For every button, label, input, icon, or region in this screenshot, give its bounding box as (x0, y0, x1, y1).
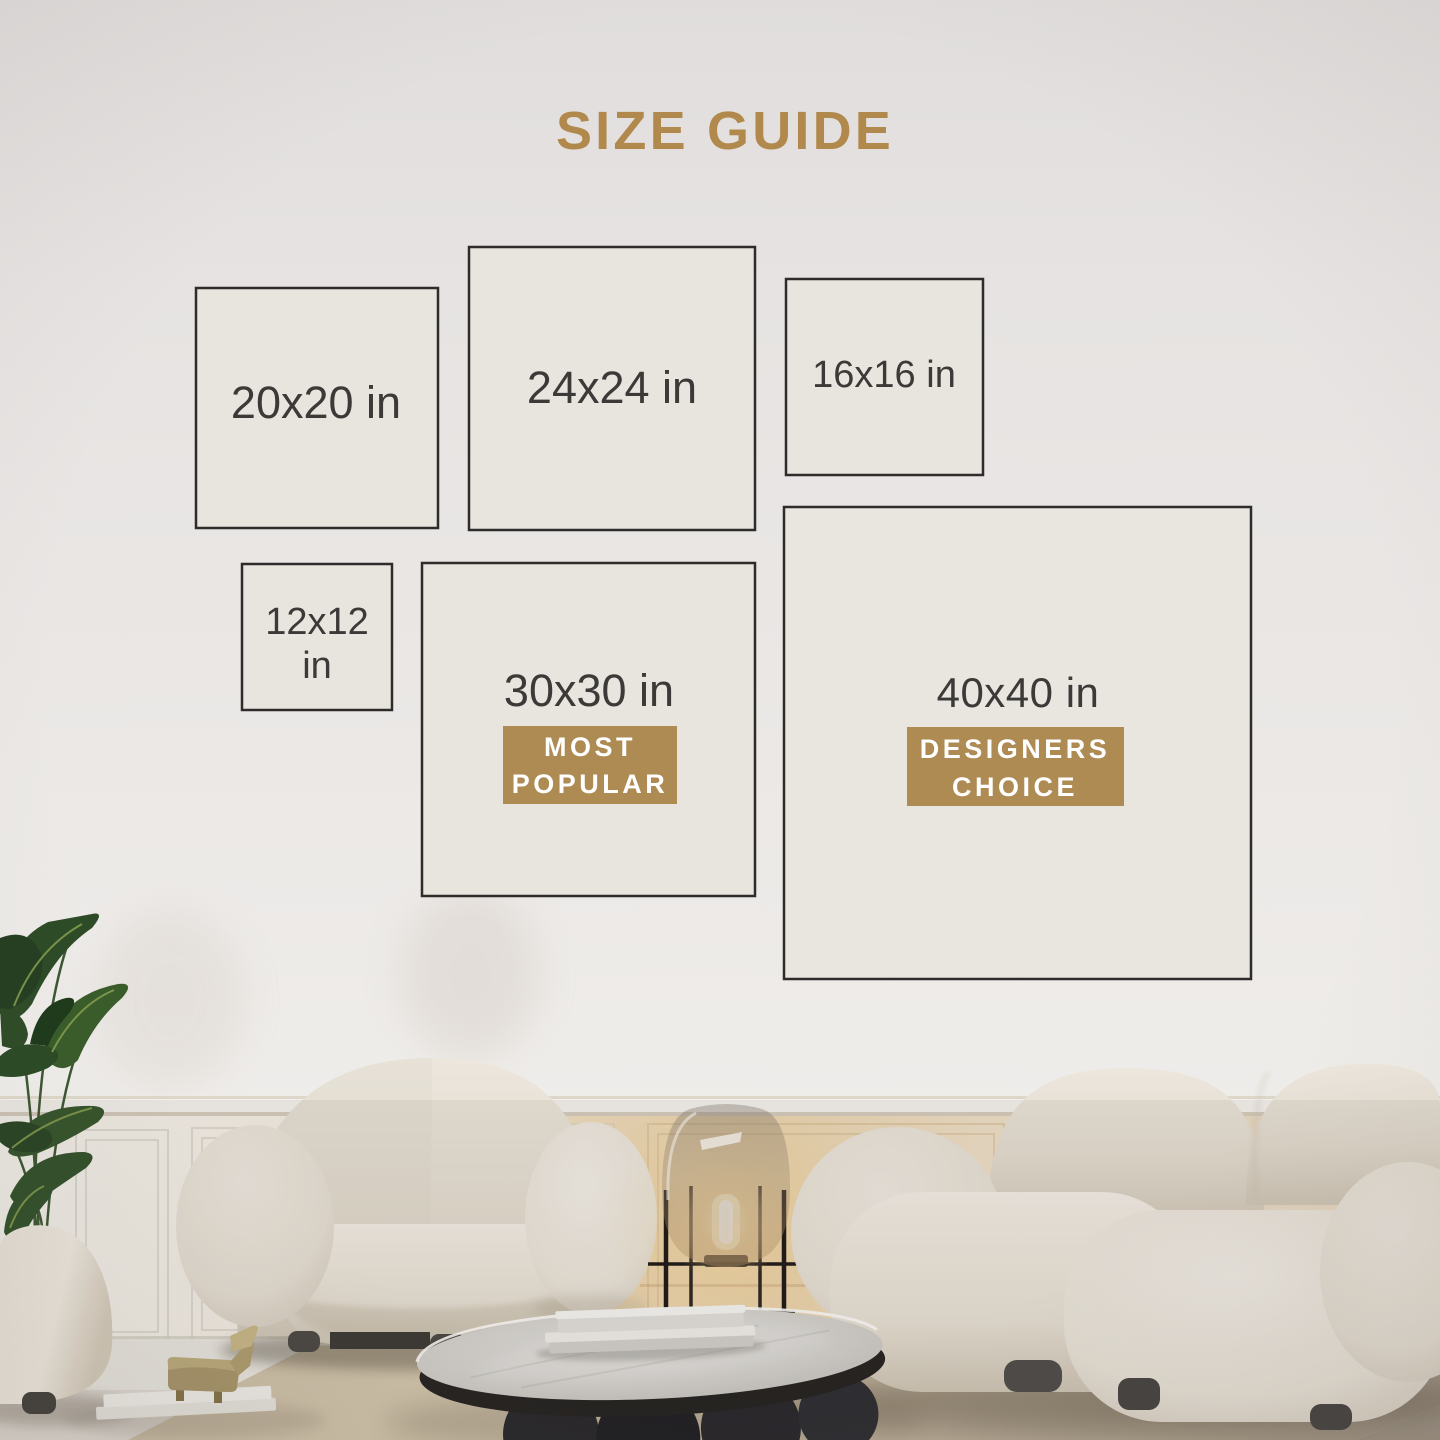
svg-text:40x40 in: 40x40 in (937, 669, 1100, 716)
svg-text:DESIGNERS: DESIGNERS (920, 734, 1111, 764)
svg-text:30x30 in: 30x30 in (504, 665, 674, 716)
svg-text:16x16 in: 16x16 in (812, 354, 956, 396)
svg-text:SIZE GUIDE: SIZE GUIDE (556, 101, 894, 161)
svg-text:CHOICE: CHOICE (952, 772, 1078, 802)
svg-text:POPULAR: POPULAR (512, 769, 669, 799)
svg-text:MOST: MOST (544, 732, 636, 762)
svg-text:20x20 in: 20x20 in (231, 377, 401, 428)
svg-text:12x12: 12x12 (265, 601, 369, 643)
svg-text:24x24 in: 24x24 in (527, 362, 697, 413)
svg-text:in: in (302, 645, 332, 687)
